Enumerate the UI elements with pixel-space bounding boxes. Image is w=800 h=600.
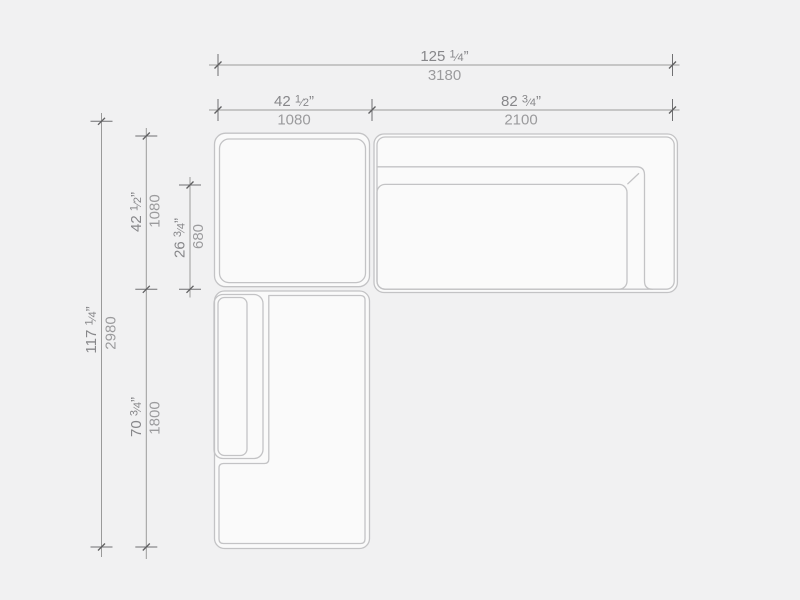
- svg-text:1800: 1800: [147, 401, 164, 434]
- svg-text:3180: 3180: [428, 67, 461, 84]
- svg-text:1080: 1080: [277, 112, 310, 129]
- svg-text:2100: 2100: [504, 112, 537, 129]
- svg-text:1080: 1080: [147, 194, 164, 227]
- svg-text:680: 680: [190, 224, 207, 249]
- svg-text:2980: 2980: [103, 316, 120, 349]
